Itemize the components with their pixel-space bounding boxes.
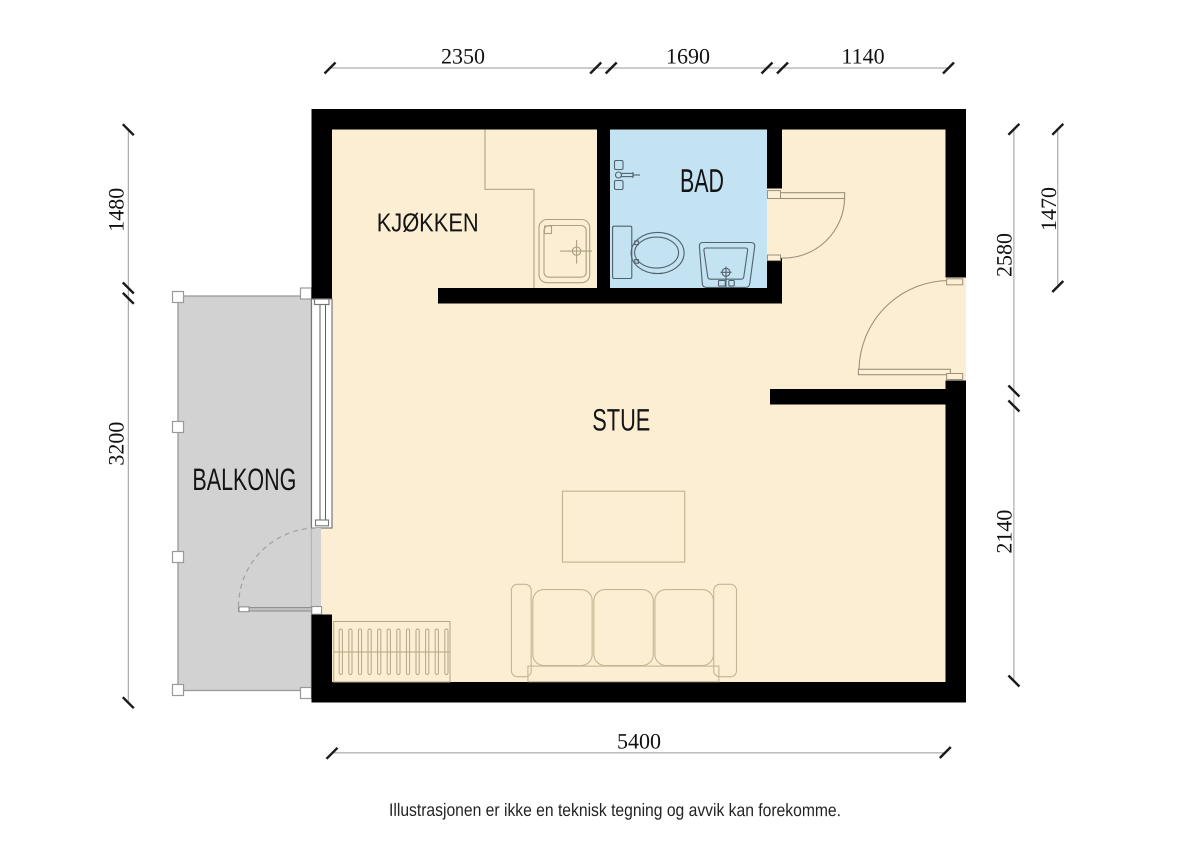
svg-text:1480: 1480 — [104, 188, 129, 232]
svg-text:1140: 1140 — [841, 43, 884, 68]
svg-text:1470: 1470 — [1036, 187, 1061, 231]
svg-text:KJØKKEN: KJØKKEN — [377, 207, 479, 237]
svg-text:3200: 3200 — [104, 422, 129, 466]
svg-text:2140: 2140 — [992, 510, 1017, 554]
svg-text:1690: 1690 — [666, 43, 710, 68]
svg-text:BAD: BAD — [680, 162, 724, 199]
svg-text:BALKONG: BALKONG — [192, 462, 296, 497]
svg-text:STUE: STUE — [592, 402, 650, 437]
svg-text:Illustrasjonen er ikke en tekn: Illustrasjonen er ikke en teknisk tegnin… — [389, 800, 841, 820]
svg-text:2350: 2350 — [441, 43, 485, 68]
svg-text:5400: 5400 — [617, 728, 661, 753]
svg-text:2580: 2580 — [992, 233, 1017, 277]
